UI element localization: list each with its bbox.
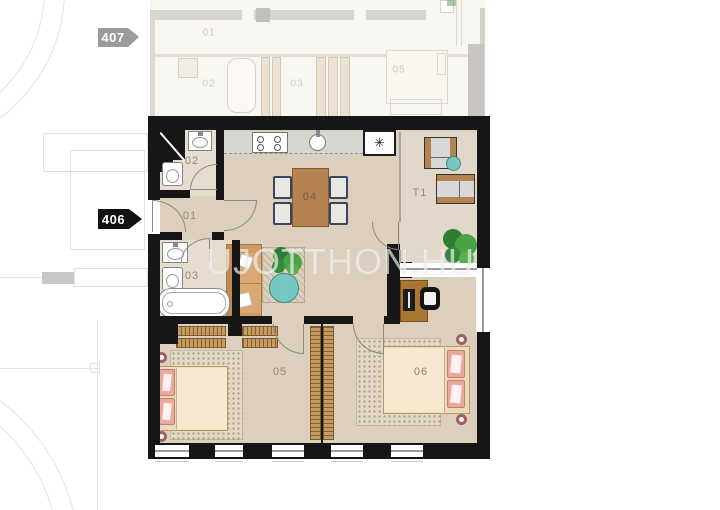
room-label-01: 01 xyxy=(183,210,197,222)
faded-room-label: 05 xyxy=(392,65,405,76)
plant-living xyxy=(272,260,285,273)
window-sill xyxy=(215,461,243,462)
faded-bed-pillow xyxy=(437,53,446,75)
pillow-inner xyxy=(450,355,462,374)
terrace-side-table xyxy=(446,156,461,171)
wall-wc-living xyxy=(216,130,224,200)
bed-05-mattress xyxy=(176,368,227,429)
terrace-glass-wall xyxy=(399,132,401,222)
wc-sink-bowl xyxy=(192,137,208,148)
faded-wardrobe xyxy=(261,57,270,118)
faded-wardrobe xyxy=(328,57,338,118)
wall-bottom xyxy=(148,443,490,459)
pillow-inner xyxy=(450,385,462,404)
bed-05-pillow xyxy=(159,369,175,396)
wardrobe-strip xyxy=(242,338,278,348)
dining-chair xyxy=(329,176,348,199)
faded-room-label: 03 xyxy=(290,79,303,90)
building-outline-line xyxy=(97,320,98,510)
terrace-lounge-chair xyxy=(436,174,475,204)
bed-06-pillow xyxy=(447,380,465,408)
bed-06-mattress xyxy=(384,348,445,412)
faded-shower xyxy=(178,58,198,78)
faded-wall-strip xyxy=(468,44,484,122)
office-chair-seat xyxy=(424,292,436,305)
window xyxy=(215,445,243,457)
room-label-04: 04 xyxy=(303,191,317,203)
window-sill xyxy=(155,461,189,462)
wardrobe-strip xyxy=(176,338,226,348)
unit-406-badge: 406 xyxy=(98,209,129,229)
faded-wardrobe xyxy=(272,57,281,118)
bed-06-pillow xyxy=(447,350,465,378)
room-label-t1: T1 xyxy=(413,187,428,199)
chair-armrest xyxy=(425,138,431,168)
room-label-06: 06 xyxy=(414,366,428,378)
building-outline-rect xyxy=(70,150,145,250)
wall-bedroom-divider xyxy=(321,324,323,443)
building-outline-tick xyxy=(90,363,100,373)
wall-mid xyxy=(304,316,353,324)
wall-hall-bath xyxy=(212,232,224,240)
window-sill xyxy=(272,461,304,462)
plant-living xyxy=(287,263,299,275)
room-label-05: 05 xyxy=(273,366,287,378)
pillow-inner xyxy=(162,403,172,421)
window xyxy=(272,445,304,457)
bathroom-toilet-bowl xyxy=(166,274,179,288)
terrace-glass-wall xyxy=(399,250,401,263)
building-outline-dashed-line xyxy=(48,171,140,172)
wall-right xyxy=(477,116,490,268)
floor-plan-canvas: 01 02 03 05 ✳ xyxy=(0,0,720,510)
laptop xyxy=(403,289,415,311)
stove-burner xyxy=(274,144,281,151)
unit-407-badge: 407 xyxy=(98,28,128,47)
ac-unit-icon: ✳ xyxy=(374,135,385,151)
terrace-window-band xyxy=(400,263,477,277)
building-outline-line xyxy=(0,368,97,369)
building-outline-bar xyxy=(42,272,74,284)
window-sill xyxy=(331,461,363,462)
faded-wall xyxy=(150,10,242,20)
nightstand-lamp xyxy=(456,334,467,345)
stove-burner xyxy=(257,136,264,143)
coffee-table xyxy=(269,273,299,303)
unit-407-badge-label: 407 xyxy=(101,30,124,45)
faded-wall-nib xyxy=(256,8,270,22)
faded-wardrobe xyxy=(340,57,350,118)
window xyxy=(391,445,423,457)
faded-line xyxy=(461,0,462,46)
laptop-screen-line xyxy=(408,292,410,308)
faded-room-label: 02 xyxy=(202,79,215,90)
faded-bench xyxy=(390,99,442,115)
building-outline-line xyxy=(0,277,42,278)
wall-mid xyxy=(148,316,272,324)
chair-seat-divider xyxy=(459,181,460,197)
kitchen-counter xyxy=(224,132,363,154)
window-sill xyxy=(391,461,423,462)
room-label-03: 03 xyxy=(185,270,199,282)
faded-bathtub xyxy=(227,58,256,113)
faded-room-label: 01 xyxy=(202,28,215,39)
faded-wall xyxy=(150,20,155,116)
stove-burner xyxy=(257,144,264,151)
wardrobe-strip xyxy=(176,326,226,336)
faded-wardrobe xyxy=(316,57,326,118)
wall-bath-living xyxy=(232,240,240,316)
wall-stub xyxy=(228,324,242,336)
unit-406-arrow-icon xyxy=(129,209,142,229)
bathtub xyxy=(158,288,230,318)
wall-top xyxy=(148,116,490,130)
room-label-02: 02 xyxy=(185,155,199,167)
faded-line xyxy=(456,0,457,46)
wc-sink xyxy=(188,131,212,151)
ac-unit-box: ✳ xyxy=(363,130,396,156)
nightstand-lamp xyxy=(456,414,467,425)
chair-armrest xyxy=(437,175,474,181)
wall-left xyxy=(148,116,160,200)
wardrobe-strip xyxy=(323,326,334,440)
window xyxy=(331,445,363,457)
bathroom-sink-tap xyxy=(173,243,178,247)
kitchen-sink-tap xyxy=(316,130,320,137)
stove xyxy=(252,132,288,153)
pillow-inner xyxy=(162,374,172,392)
bed-05-pillow xyxy=(159,398,175,425)
unit-407-arrow-icon xyxy=(128,28,139,47)
window xyxy=(476,268,490,332)
wall-right xyxy=(477,332,490,443)
office-chair xyxy=(420,287,440,310)
chair-armrest xyxy=(437,197,474,203)
unit-406-badge-label: 406 xyxy=(102,212,125,227)
bathtub-drain xyxy=(167,301,173,307)
wc-toilet-bowl xyxy=(166,169,179,183)
dining-chair xyxy=(273,202,292,225)
wall-wc-hall xyxy=(160,190,190,198)
stove-burner xyxy=(274,136,281,143)
faded-plant-bit xyxy=(447,0,456,6)
wardrobe-strip xyxy=(310,326,321,440)
wc-toilet xyxy=(162,162,183,186)
wc-sink-tap xyxy=(198,132,203,136)
building-outline-rect xyxy=(74,268,148,287)
dining-chair xyxy=(329,202,348,225)
faded-wall xyxy=(366,10,426,20)
window xyxy=(155,445,189,457)
dining-chair xyxy=(273,176,292,199)
